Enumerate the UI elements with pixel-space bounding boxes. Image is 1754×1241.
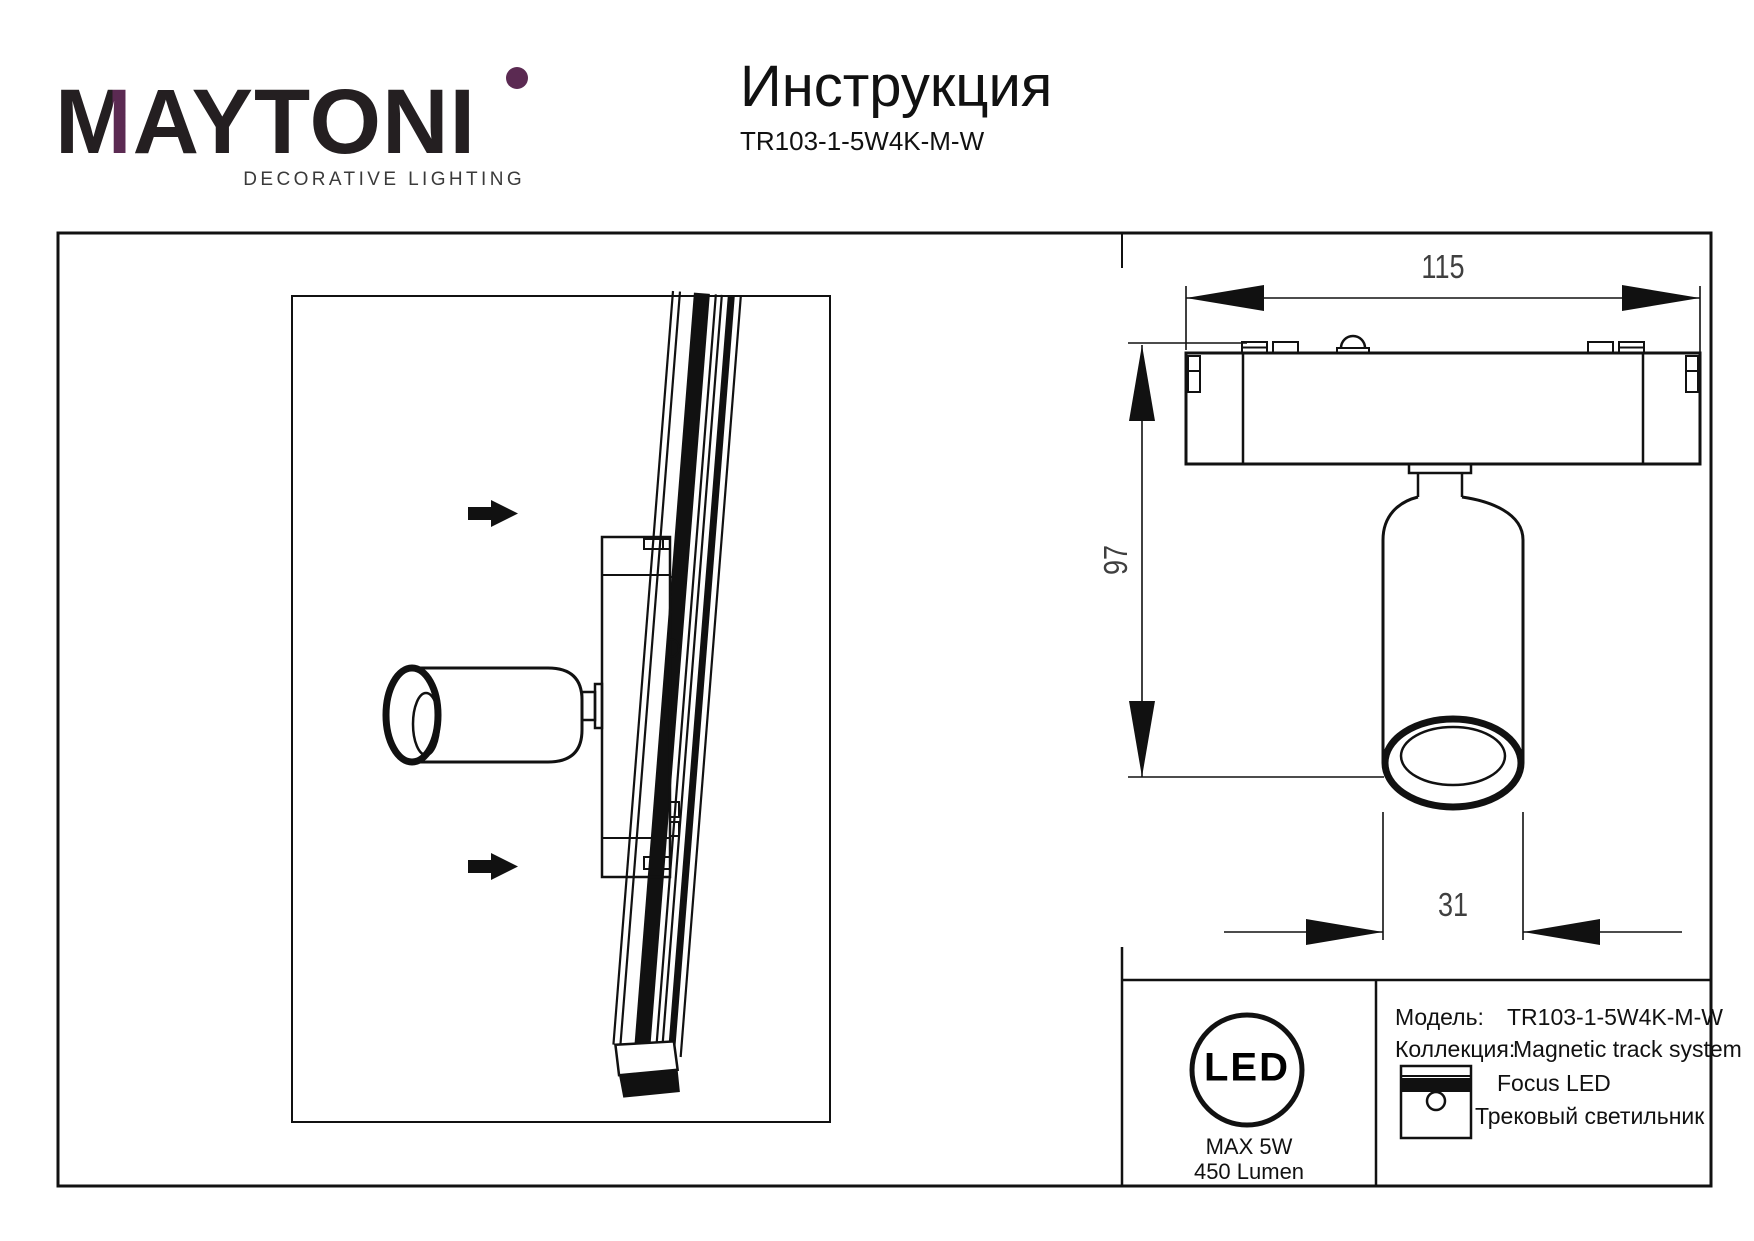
dim-label-diameter: 31 (1438, 886, 1468, 924)
collection-label: Коллекция: (1395, 1036, 1515, 1063)
collection-value: Magnetic track system (1513, 1036, 1742, 1063)
dimension-97 (1128, 343, 1384, 777)
dome-bump (1341, 336, 1365, 348)
track-adapter-front (1186, 336, 1700, 464)
arrow-bottom-icon (468, 853, 518, 880)
model-value: TR103-1-5W4K-M-W (1507, 1004, 1723, 1031)
track-light-pictogram-icon (1401, 1066, 1471, 1138)
dimension-31 (1224, 812, 1682, 945)
lens-rim-side (386, 668, 438, 762)
instruction-page: MAYTONI DECORATIVE LIGHTING Инструкция T… (0, 0, 1754, 1241)
led-badge-text: LED (1204, 1046, 1290, 1091)
lens-rim-front (1385, 719, 1521, 807)
dim-label-width: 115 (1421, 248, 1464, 286)
dim-label-height: 97 (1097, 545, 1135, 575)
lamp-head-front (1383, 464, 1523, 807)
magnetic-track (609, 291, 742, 1102)
dome-base (1337, 348, 1369, 353)
product-name-line2: Трековый светильник (1475, 1103, 1704, 1130)
lamp-head-side (386, 668, 602, 762)
product-name-line1: Focus LED (1497, 1070, 1611, 1097)
led-lumen: 450 Lumen (1194, 1159, 1304, 1185)
led-max-power: MAX 5W (1206, 1134, 1293, 1160)
model-label: Модель: (1395, 1004, 1484, 1031)
arrow-top-icon (468, 500, 518, 527)
